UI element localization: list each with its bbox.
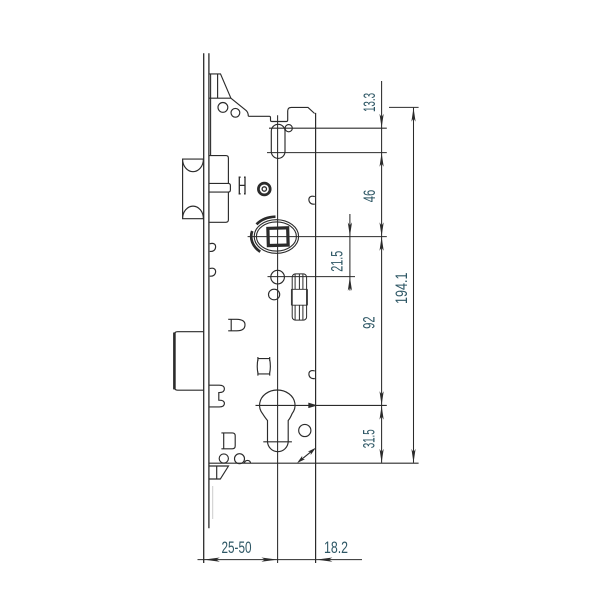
svg-text:13.3: 13.3 (360, 93, 379, 112)
svg-text:46: 46 (360, 190, 379, 203)
svg-text:194.1: 194.1 (392, 273, 411, 305)
svg-text:92: 92 (360, 316, 379, 329)
svg-text:25-50: 25-50 (222, 538, 252, 557)
svg-text:31.5: 31.5 (359, 429, 378, 448)
svg-text:21.5: 21.5 (328, 251, 347, 272)
svg-text:18.2: 18.2 (324, 538, 348, 557)
